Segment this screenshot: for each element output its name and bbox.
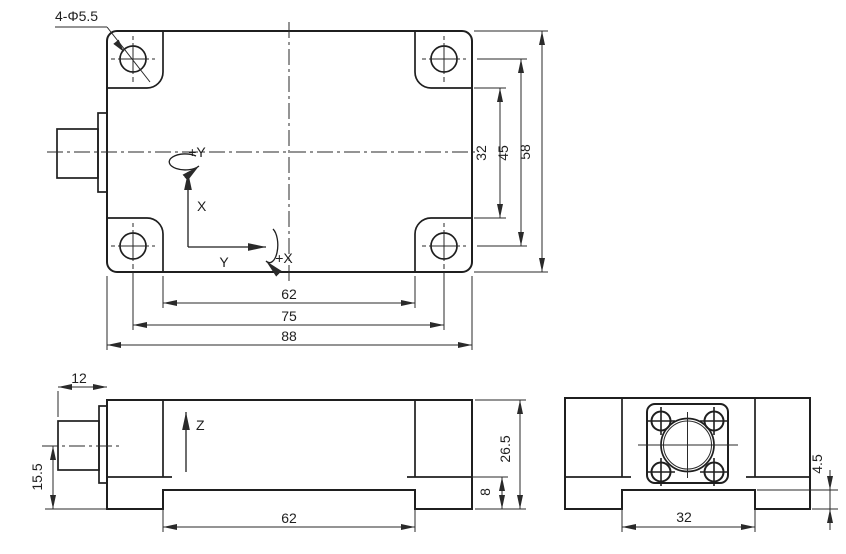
coordinate-system: X Y +Y +X [169, 144, 293, 270]
y-axis-label: Y [219, 254, 229, 270]
dim-recess-length-front: 62 [163, 509, 415, 532]
top-view-horizontal-dimensions: 62 75 88 [107, 272, 472, 350]
dim-text-15-5: 15.5 [29, 463, 45, 490]
dim-text-45: 45 [495, 145, 511, 161]
engineering-drawing-sheet: X Y +Y +X 4-Φ5.5 32 45 58 [0, 0, 846, 554]
mounting-hole-bottom-left [111, 223, 155, 269]
dim-recess-width-side: 32 [622, 509, 755, 532]
dim-text-75: 75 [281, 308, 297, 324]
rot-x-label: +X [275, 250, 293, 266]
z-axis-label: Z [196, 417, 205, 433]
dim-text-12: 12 [71, 370, 87, 386]
drawing-canvas: X Y +Y +X 4-Φ5.5 32 45 58 [0, 0, 846, 554]
z-axis: Z [186, 412, 205, 472]
mounting-hole-top-right [422, 36, 466, 82]
dim-text-4-5: 4.5 [809, 454, 825, 474]
dim-text-62: 62 [281, 286, 297, 302]
dim-connector-axis-height: 15.5 [29, 446, 107, 509]
dim-text-62-front: 62 [281, 510, 297, 526]
dim-text-32-side: 32 [676, 509, 692, 525]
connector-flange-side-view [638, 404, 738, 486]
dim-text-58: 58 [517, 144, 533, 160]
front-view: Z 12 15.5 26.5 8 62 [29, 370, 526, 532]
top-view: X Y +Y +X 4-Φ5.5 32 45 58 [47, 8, 548, 350]
dim-text-8: 8 [477, 488, 493, 496]
dim-text-32: 32 [473, 145, 489, 161]
connector-plug-top-view [57, 129, 98, 178]
dim-text-88: 88 [281, 328, 297, 344]
front-view-body-outline [107, 400, 472, 509]
top-view-vertical-dimensions: 32 45 58 [473, 31, 548, 272]
callout-leader-line [107, 27, 150, 82]
flange-screw-top-right [700, 407, 728, 435]
callout-arrowhead [113, 40, 126, 54]
rot-y-label: +Y [188, 144, 206, 160]
x-axis-label: X [197, 198, 207, 214]
dim-recess-depth: 4.5 [757, 454, 838, 530]
dim-text-26-5: 26.5 [497, 435, 513, 462]
corner-lug-bottom-left [107, 218, 163, 272]
side-view: 32 4.5 [565, 398, 838, 532]
hole-callout-label: 4-Φ5.5 [55, 8, 98, 24]
connector-flange-front-view [99, 406, 107, 483]
dim-heights: 26.5 8 [472, 400, 526, 509]
mounting-hole-bottom-right [422, 223, 466, 269]
flange-screw-top-left [647, 407, 675, 435]
